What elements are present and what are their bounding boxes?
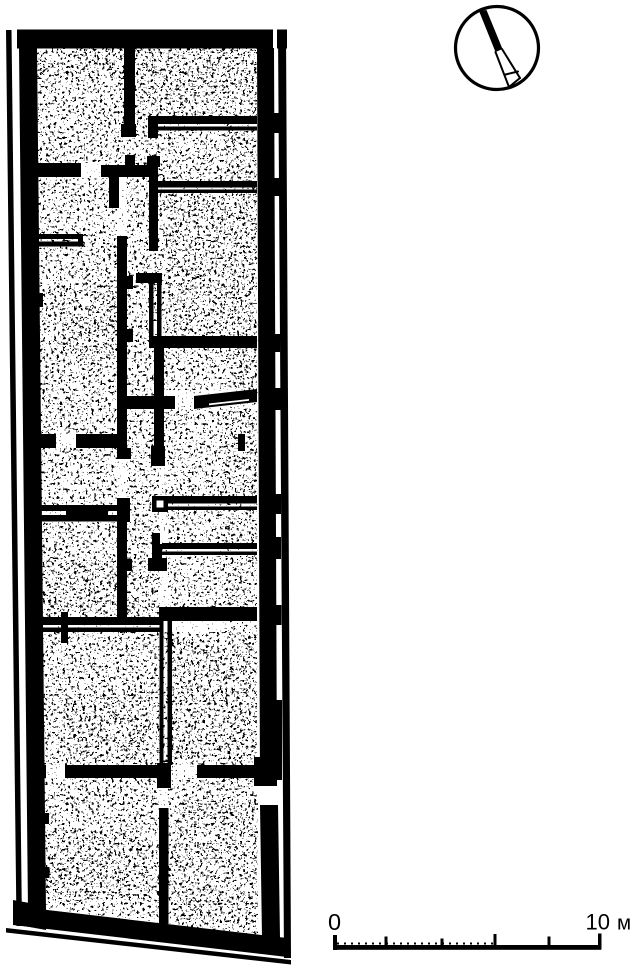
svg-text:10м: 10м	[586, 910, 632, 935]
svg-text:0: 0	[328, 909, 341, 935]
